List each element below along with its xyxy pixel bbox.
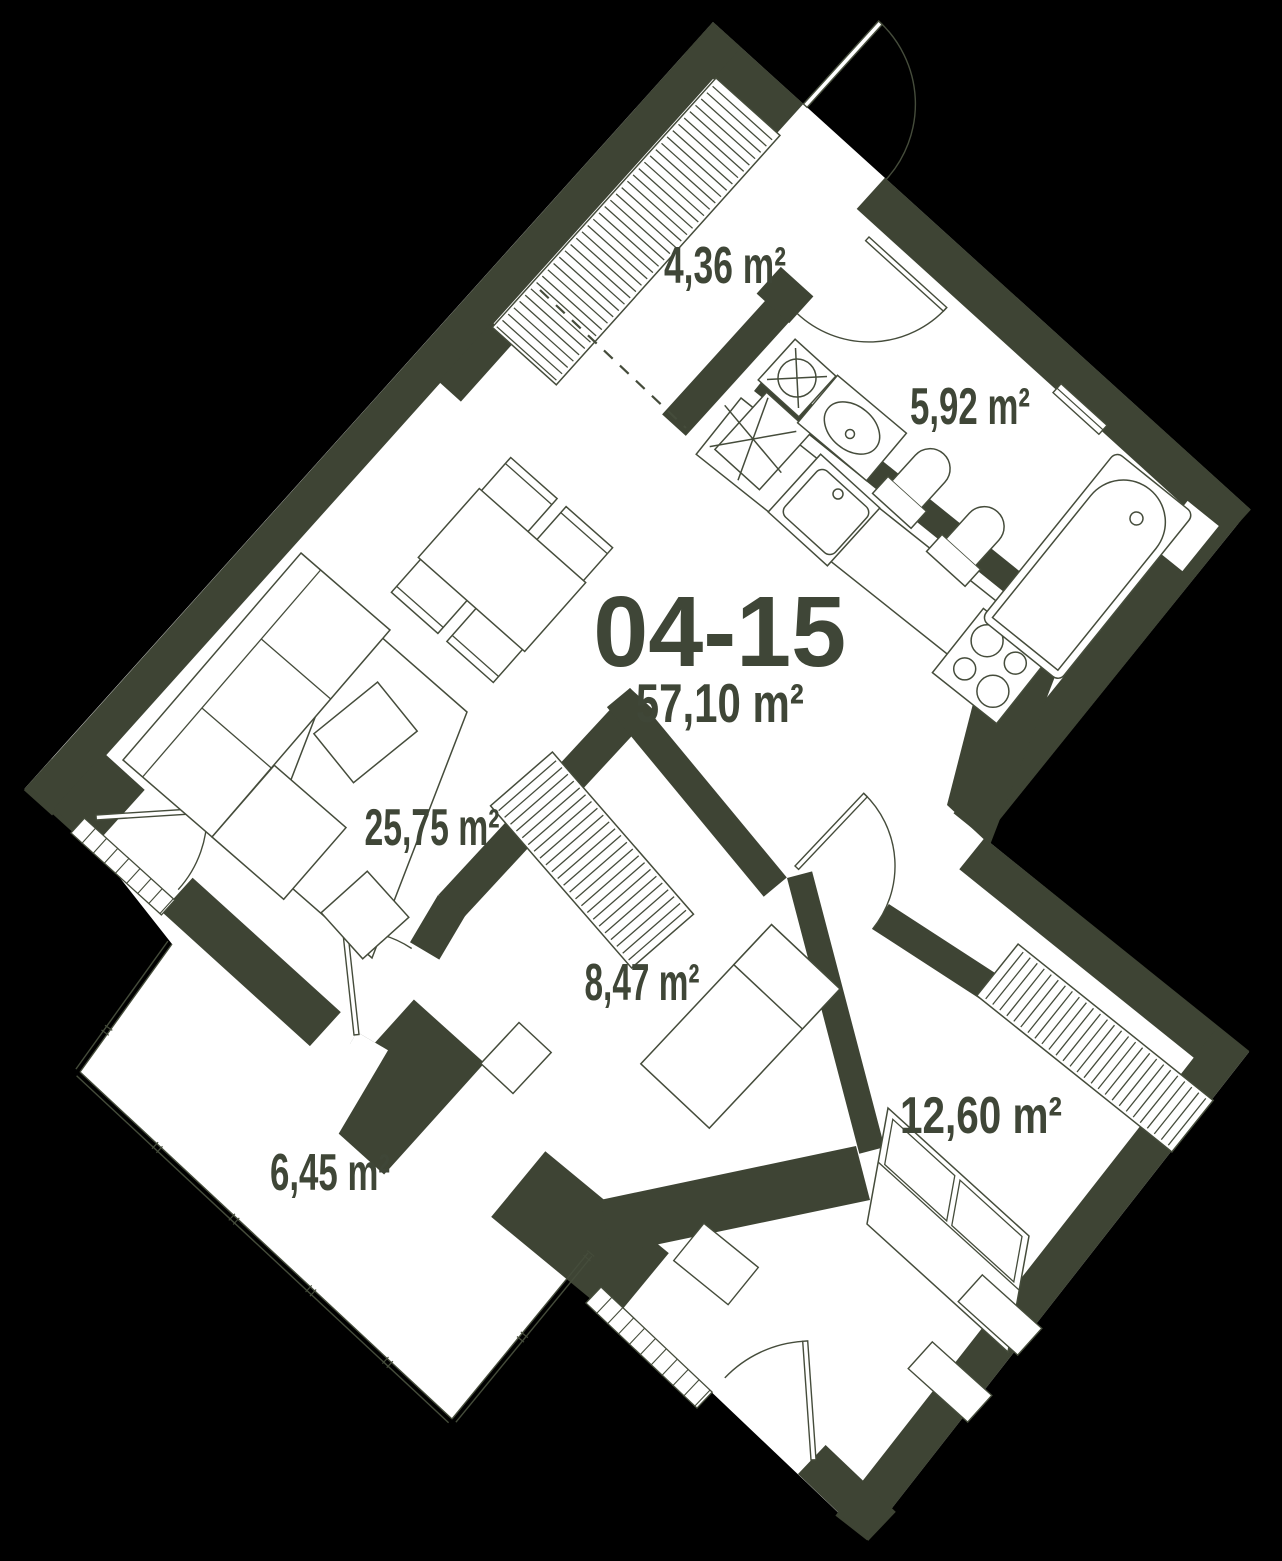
svg-text:4,36 m²: 4,36 m² (664, 237, 786, 295)
svg-text:57,10 m²: 57,10 m² (636, 672, 804, 734)
svg-text:5,92 m²: 5,92 m² (910, 378, 1030, 436)
svg-text:25,75 m²: 25,75 m² (365, 799, 500, 857)
svg-text:8,47 m²: 8,47 m² (585, 954, 700, 1012)
svg-text:6,45 m²: 6,45 m² (270, 1144, 390, 1202)
svg-text:12,60 m²: 12,60 m² (900, 1087, 1062, 1145)
